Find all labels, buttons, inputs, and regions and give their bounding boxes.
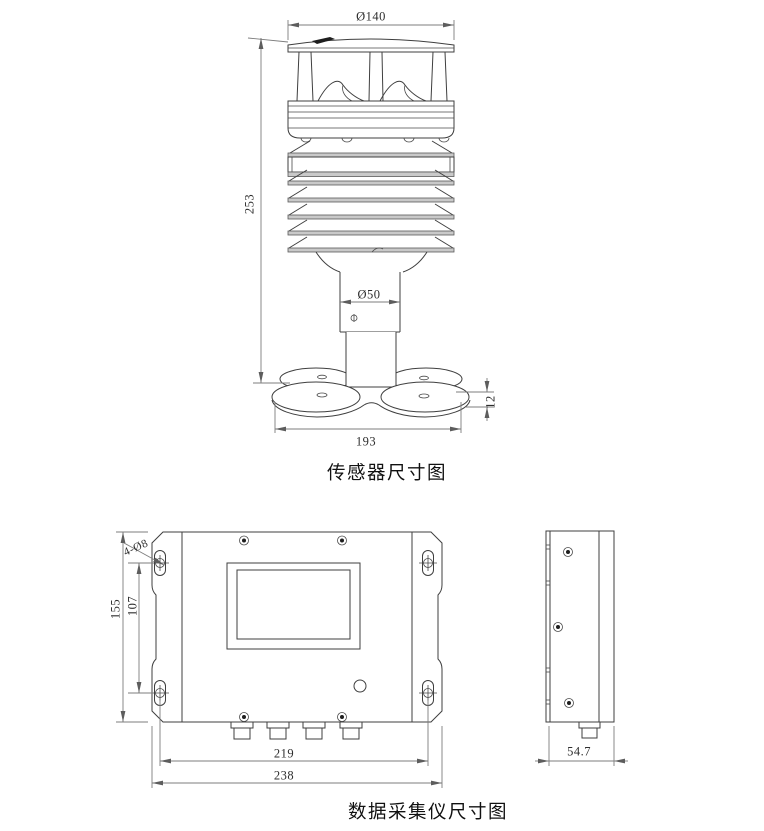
sensor-head-body bbox=[288, 101, 454, 142]
collector-back-plate bbox=[152, 532, 442, 722]
dim-overall-height: 253 bbox=[243, 194, 258, 214]
dim-pole-diameter: Ø50 bbox=[357, 288, 380, 303]
technical-drawing-page: Ø140 253 Ø50 12 193 传感器尺寸图 4-Ø8 155 107 … bbox=[0, 0, 764, 831]
dim-base-width: 193 bbox=[356, 435, 376, 450]
dim-cap-diameter: Ø140 bbox=[356, 10, 386, 25]
sensor-figure bbox=[248, 20, 494, 433]
dim-collector-height: 155 bbox=[109, 599, 124, 619]
sensor-cap bbox=[288, 37, 454, 52]
transducer-cone-left bbox=[318, 81, 364, 101]
sensor-figure-caption: 传感器尺寸图 bbox=[327, 459, 447, 485]
radiation-shield-louvers bbox=[288, 141, 454, 252]
transducer-cone-right bbox=[380, 81, 426, 101]
collector-side-view bbox=[535, 531, 628, 766]
dim-hole-spacing-vertical: 107 bbox=[126, 596, 141, 616]
wind-transducer-section bbox=[288, 52, 454, 101]
side-cable-gland bbox=[579, 722, 600, 738]
collector-figure-caption: 数据采集仪尺寸图 bbox=[348, 798, 508, 824]
cable-glands bbox=[231, 722, 362, 739]
line-art bbox=[0, 0, 764, 831]
dim-collector-depth: 54.7 bbox=[567, 745, 591, 760]
dim-base-thickness: 12 bbox=[484, 395, 499, 409]
dim-hole-spacing-horizontal: 219 bbox=[274, 747, 294, 762]
dim-collector-width: 238 bbox=[274, 769, 294, 784]
base-plate bbox=[272, 332, 470, 417]
